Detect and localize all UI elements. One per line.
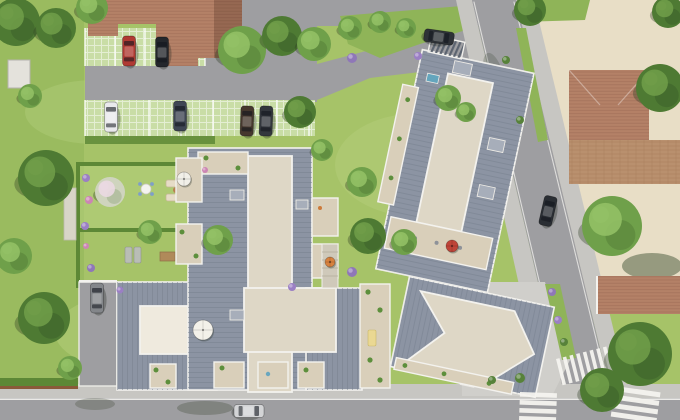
shrub bbox=[347, 267, 357, 277]
shrub bbox=[502, 56, 510, 64]
aerial-render bbox=[0, 0, 680, 420]
garden-wood-table bbox=[160, 252, 175, 261]
lane-gate-line bbox=[79, 280, 117, 283]
road-tree-shadow bbox=[75, 398, 115, 410]
parking-hedge bbox=[85, 136, 215, 144]
shrub bbox=[85, 196, 93, 204]
shrub bbox=[516, 116, 524, 124]
flat-roof-spine bbox=[248, 156, 292, 392]
balcony bbox=[298, 362, 324, 388]
parking-aisle bbox=[85, 64, 317, 102]
shrub bbox=[560, 338, 568, 346]
shrub bbox=[548, 288, 556, 296]
shrub bbox=[414, 52, 422, 60]
shrub bbox=[81, 222, 89, 230]
shrub bbox=[347, 53, 357, 63]
shrub bbox=[83, 243, 89, 249]
shrub bbox=[202, 167, 208, 173]
flat-roof-block bbox=[244, 288, 336, 352]
shrub bbox=[82, 174, 90, 182]
shrub bbox=[288, 283, 296, 291]
shrub bbox=[117, 287, 124, 294]
shrub bbox=[488, 376, 496, 384]
shrub bbox=[87, 264, 95, 272]
hedge-shadow-right bbox=[622, 253, 680, 279]
garden-shed bbox=[8, 60, 30, 88]
terrace-corridor bbox=[360, 284, 390, 388]
balcony bbox=[312, 198, 338, 236]
balcony bbox=[258, 362, 288, 388]
lounger bbox=[368, 330, 376, 346]
road-tree-shadow bbox=[177, 401, 233, 415]
neighbor-house-bottom-right bbox=[597, 276, 680, 314]
car-silver-car-road bbox=[231, 404, 264, 420]
balcony bbox=[150, 364, 176, 388]
shrub bbox=[515, 373, 525, 383]
balcony bbox=[214, 362, 244, 388]
shrub bbox=[554, 316, 562, 324]
boundary-fence bbox=[0, 386, 78, 389]
balcony bbox=[176, 224, 202, 264]
